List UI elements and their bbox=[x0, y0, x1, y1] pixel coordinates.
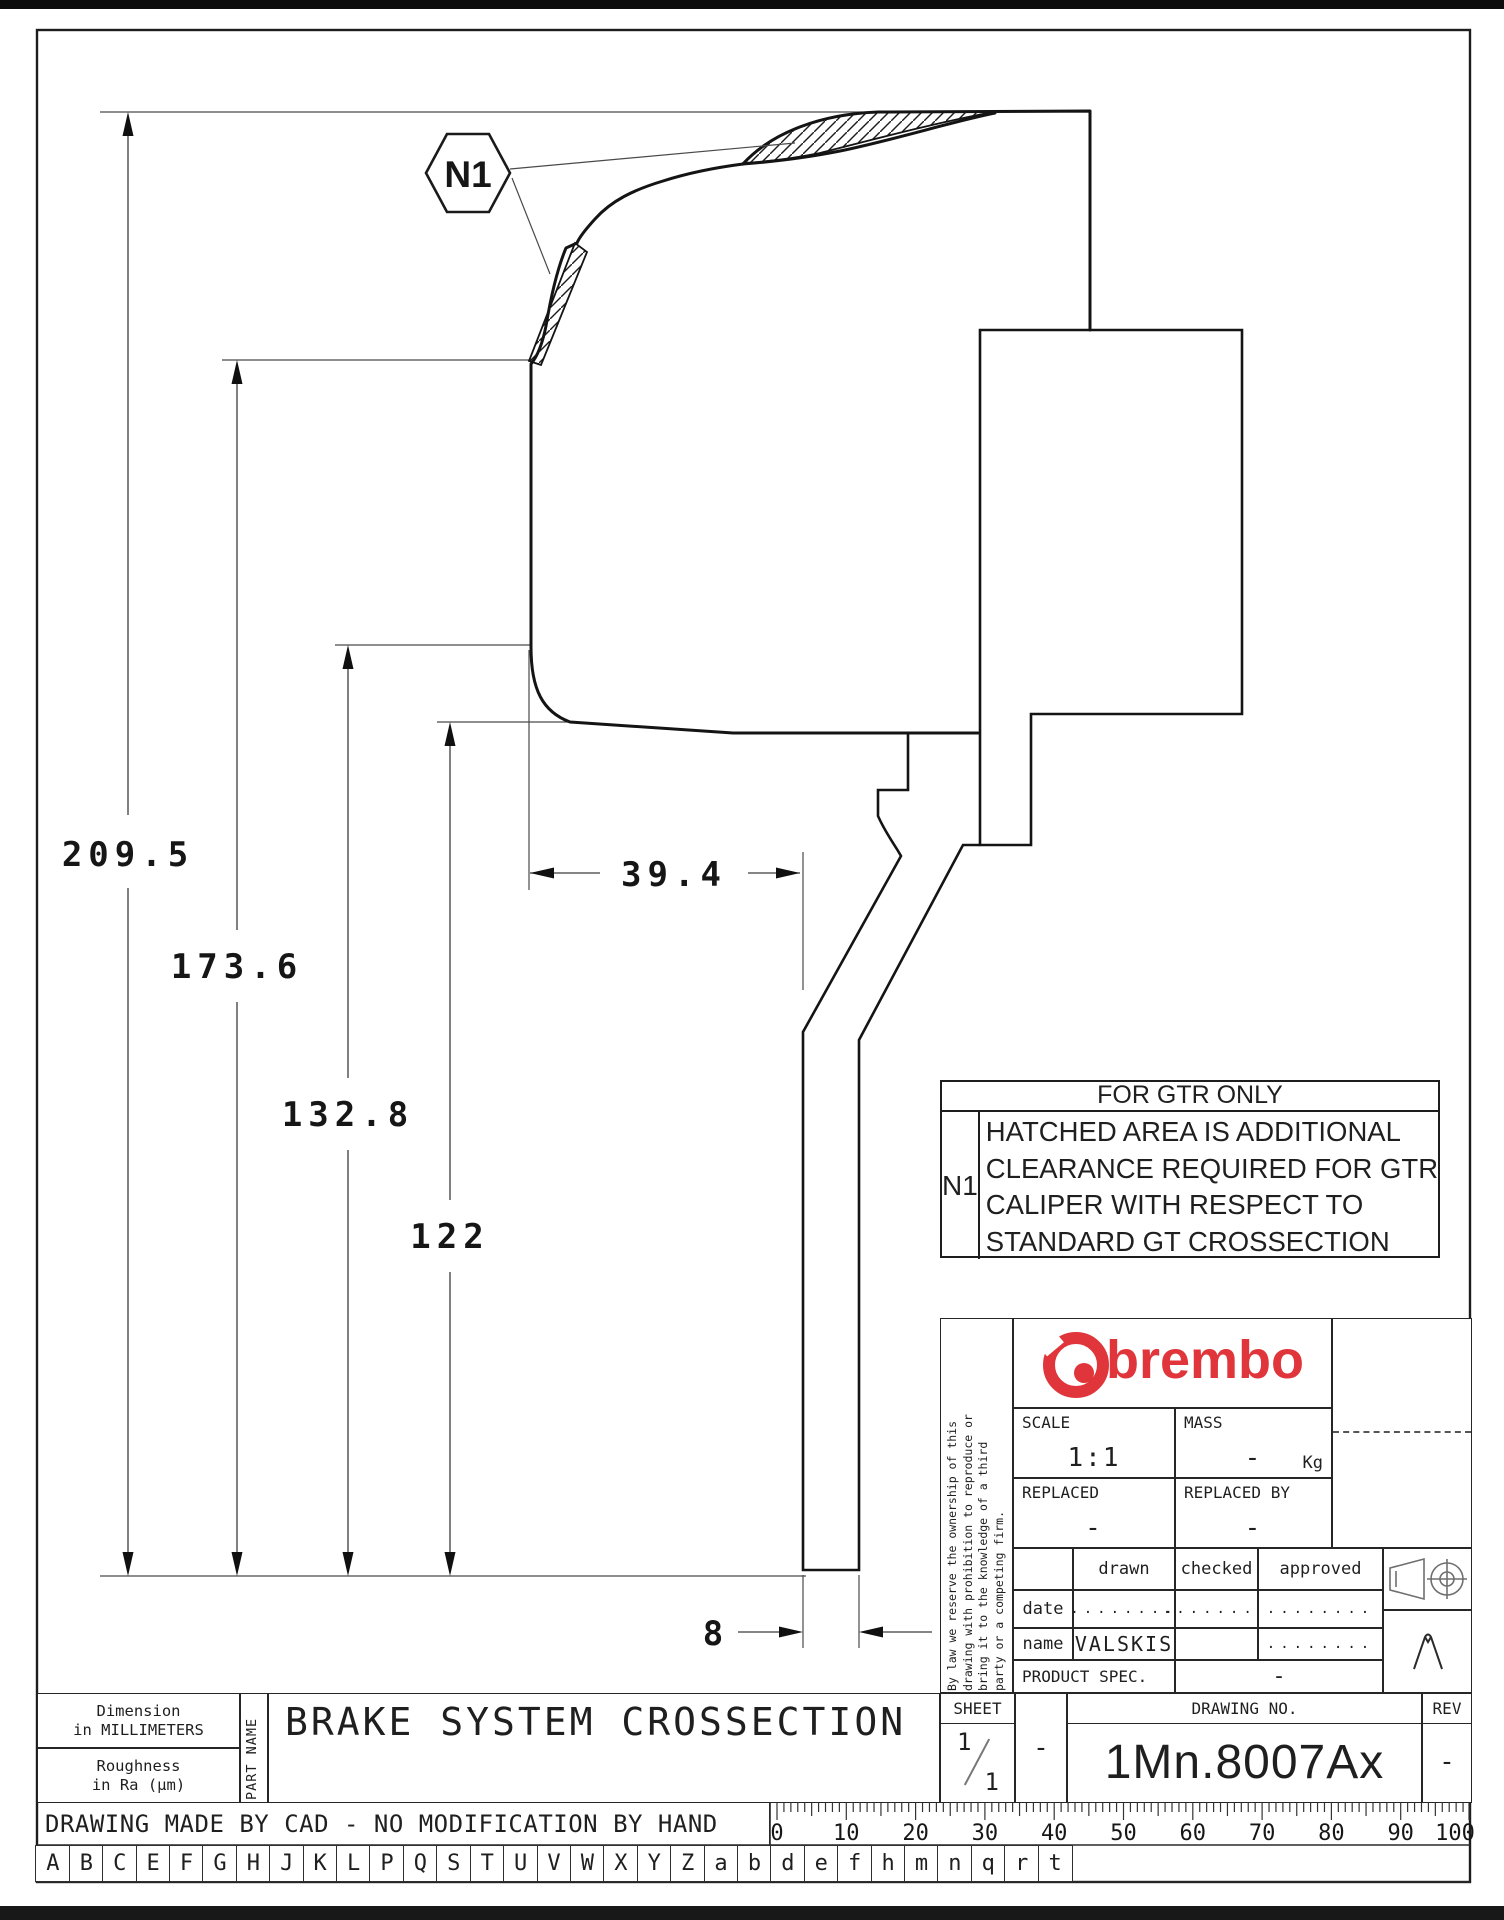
revision-letter: b bbox=[737, 1845, 772, 1882]
gtr-note-title: FOR GTR ONLY bbox=[942, 1082, 1438, 1112]
date-drawn-dots: ........ bbox=[1073, 1590, 1175, 1628]
revision-letter: F bbox=[169, 1845, 204, 1882]
gtr-note-line: STANDARD GT CROSSECTION bbox=[986, 1224, 1438, 1261]
roughness-note-line: Roughness bbox=[97, 1757, 181, 1776]
units-note-line: in MILLIMETERS bbox=[73, 1721, 204, 1740]
ruler-number: 0 bbox=[770, 1821, 783, 1846]
centerline-continuation bbox=[1333, 1431, 1471, 1433]
revision-letter: H bbox=[236, 1845, 271, 1882]
ruler-number: 70 bbox=[1249, 1821, 1276, 1846]
caliper-block-outline bbox=[980, 330, 1242, 845]
revision-letter: P bbox=[369, 1845, 404, 1882]
revision-letter: L bbox=[336, 1845, 371, 1882]
n1-balloon-label: N1 bbox=[444, 154, 491, 195]
dim-body-width: 39.4 bbox=[621, 855, 727, 895]
ruler-number: 40 bbox=[1041, 1821, 1068, 1846]
product-spec-cell: PRODUCT SPEC. bbox=[1013, 1660, 1175, 1693]
sheet-num: 1 bbox=[957, 1728, 971, 1756]
scale-cell: SCALE 1:1 bbox=[1013, 1408, 1175, 1478]
name-checked-blank bbox=[1175, 1628, 1258, 1660]
revision-letter: q bbox=[971, 1845, 1006, 1882]
cad-drawing-page: N1 209.5 173.6 132.8 122 39.4 8 01020304… bbox=[0, 0, 1504, 1920]
part-name-value: BRAKE SYSTEM CROSSECTION bbox=[269, 1694, 939, 1744]
sheet-den: 1 bbox=[985, 1768, 999, 1796]
scale-ruler: 0102030405060708090100 bbox=[770, 1803, 1475, 1846]
revision-letter: h bbox=[871, 1845, 906, 1882]
part-name-cell: BRAKE SYSTEM CROSSECTION bbox=[268, 1693, 940, 1803]
ruler-number: 100 bbox=[1435, 1821, 1475, 1846]
drawing-no-value: 1Mn.8007Ax bbox=[1068, 1724, 1421, 1800]
ruler-number: 10 bbox=[833, 1821, 860, 1846]
revision-letter: t bbox=[1038, 1845, 1073, 1882]
revision-letter: n bbox=[937, 1845, 972, 1882]
ownership-disclaimer: By law we reserve the ownership of this … bbox=[940, 1318, 1013, 1693]
revision-letter: d bbox=[770, 1845, 805, 1882]
product-spec-value: - bbox=[1175, 1660, 1383, 1693]
revision-letter: J bbox=[269, 1845, 304, 1882]
ruler-number: 30 bbox=[972, 1821, 999, 1846]
revision-letter: W bbox=[570, 1845, 605, 1882]
sheet-value: 1 1 bbox=[955, 1730, 1001, 1794]
date-approved-dots: ........ bbox=[1258, 1590, 1383, 1628]
replaced-by-value: - bbox=[1176, 1513, 1331, 1543]
approved-header: approved bbox=[1258, 1548, 1383, 1590]
dim-body-height: 132.8 bbox=[282, 1095, 414, 1135]
revision-letter: B bbox=[69, 1845, 104, 1882]
disclaimer-line: By law we reserve the ownership of this bbox=[945, 1319, 961, 1691]
sheet-label: SHEET bbox=[941, 1694, 1014, 1724]
revision-letter: f bbox=[837, 1845, 872, 1882]
revision-letter: G bbox=[202, 1845, 237, 1882]
revision-letter: m bbox=[904, 1845, 939, 1882]
revision-letter: Y bbox=[637, 1845, 672, 1882]
gtr-note-line: CALIPER WITH RESPECT TO bbox=[986, 1187, 1438, 1224]
name-drawn-value: VALSKIS bbox=[1073, 1628, 1175, 1660]
dim-disc-thickness: 8 bbox=[703, 1614, 729, 1654]
replaced-cell: REPLACED - bbox=[1013, 1478, 1175, 1548]
date-checked-dots: ........ bbox=[1175, 1590, 1258, 1628]
revision-letter: A bbox=[35, 1845, 70, 1882]
revision-letter: Z bbox=[670, 1845, 705, 1882]
title-block-spacer bbox=[1332, 1318, 1472, 1548]
revision-letter: K bbox=[303, 1845, 338, 1882]
disclaimer-line: drawing with prohibition to reproduce or bbox=[961, 1319, 977, 1691]
revision-letter: V bbox=[537, 1845, 572, 1882]
dimension-lines bbox=[128, 118, 932, 1632]
sheet-dash-cell: - bbox=[1015, 1693, 1067, 1803]
revision-letter: E bbox=[136, 1845, 171, 1882]
gtr-note-ref: N1 bbox=[942, 1112, 980, 1259]
replaced-label: REPLACED bbox=[1014, 1479, 1174, 1502]
revision-letter: e bbox=[804, 1845, 839, 1882]
disclaimer-line: party or a competing firm. bbox=[992, 1319, 1008, 1691]
gtr-note-box: FOR GTR ONLY N1 HATCHED AREA IS ADDITION… bbox=[940, 1080, 1440, 1258]
gtr-note-text: HATCHED AREA IS ADDITIONAL CLEARANCE REQ… bbox=[980, 1112, 1438, 1259]
revision-letter: C bbox=[102, 1845, 137, 1882]
roughness-note-line: in Ra (µm) bbox=[92, 1776, 185, 1795]
replaced-by-cell: REPLACED BY - bbox=[1175, 1478, 1332, 1548]
revision-letter: X bbox=[603, 1845, 638, 1882]
brand-cell: brembo bbox=[1013, 1318, 1332, 1408]
dim-hat-height: 173.6 bbox=[171, 947, 303, 987]
brand-wordmark: brembo bbox=[1106, 1333, 1304, 1387]
ruler-number: 90 bbox=[1387, 1821, 1414, 1846]
drawing-no-cell: DRAWING NO. 1Mn.8007Ax bbox=[1067, 1693, 1422, 1803]
revision-letter: Q bbox=[403, 1845, 438, 1882]
gtr-note-line: CLEARANCE REQUIRED FOR GTR bbox=[986, 1151, 1438, 1188]
ruler-number: 60 bbox=[1180, 1821, 1207, 1846]
cad-note-row: DRAWING MADE BY CAD - NO MODIFICATION BY… bbox=[37, 1803, 770, 1845]
hatch-area-upper bbox=[743, 112, 993, 163]
gtr-profile-outline bbox=[531, 113, 995, 733]
rev-label: REV bbox=[1423, 1694, 1471, 1724]
product-spec-label: PRODUCT SPEC. bbox=[1014, 1661, 1174, 1686]
revision-letter: r bbox=[1004, 1845, 1039, 1882]
revision-letter: S bbox=[436, 1845, 471, 1882]
title-block: By law we reserve the ownership of this … bbox=[940, 1318, 1472, 1803]
checked-header: checked bbox=[1175, 1548, 1258, 1590]
dim-inner-height: 122 bbox=[410, 1217, 489, 1257]
revision-letters-row: ABCEFGHJKLPQSTUVWXYZabdefhmnqrt bbox=[37, 1845, 1073, 1882]
ruler-number: 20 bbox=[902, 1821, 929, 1846]
units-note-cell: Dimension in MILLIMETERS bbox=[37, 1693, 240, 1748]
datum-symbol-cell bbox=[1383, 1610, 1472, 1693]
part-name-strip: Dimension in MILLIMETERS Roughness in Ra… bbox=[37, 1693, 940, 1803]
mass-cell: MASS - Kg bbox=[1175, 1408, 1332, 1478]
projection-symbol-icon bbox=[1384, 1549, 1471, 1609]
revision-letter: a bbox=[704, 1845, 739, 1882]
name-approved-dots: ........ bbox=[1258, 1628, 1383, 1660]
name-label: name bbox=[1013, 1628, 1073, 1660]
part-name-label: PART NAME bbox=[244, 1694, 260, 1800]
rev-cell: REV - bbox=[1422, 1693, 1472, 1803]
disclaimer-line: bring it to the knowledge of a third bbox=[976, 1319, 992, 1691]
gtr-note-line: HATCHED AREA IS ADDITIONAL bbox=[986, 1114, 1438, 1151]
sig-header-blank bbox=[1013, 1548, 1073, 1590]
projection-symbol-cell bbox=[1383, 1548, 1472, 1610]
hatch-area-lower bbox=[529, 243, 587, 365]
ruler-number: 50 bbox=[1110, 1821, 1137, 1846]
roughness-note-cell: Roughness in Ra (µm) bbox=[37, 1748, 240, 1803]
revision-letter: T bbox=[470, 1845, 505, 1882]
scale-label: SCALE bbox=[1014, 1409, 1174, 1432]
drawn-header: drawn bbox=[1073, 1548, 1175, 1590]
replaced-value: - bbox=[1014, 1513, 1174, 1543]
dimension-values: 209.5 173.6 132.8 122 39.4 8 bbox=[62, 835, 729, 1654]
ruler-number: 80 bbox=[1318, 1821, 1345, 1846]
date-label: date bbox=[1013, 1590, 1073, 1628]
scale-value: 1:1 bbox=[1014, 1443, 1174, 1473]
sheet-cell: SHEET 1 1 bbox=[940, 1693, 1015, 1803]
dim-overall-height: 209.5 bbox=[62, 835, 194, 875]
part-name-label-cell: PART NAME bbox=[240, 1693, 268, 1803]
datum-a-icon bbox=[1384, 1611, 1471, 1691]
mass-label: MASS bbox=[1176, 1409, 1331, 1432]
replaced-by-label: REPLACED BY bbox=[1176, 1479, 1331, 1502]
drawing-no-label: DRAWING NO. bbox=[1068, 1694, 1421, 1724]
units-note-line: Dimension bbox=[97, 1702, 181, 1721]
revision-letter: U bbox=[503, 1845, 538, 1882]
mass-unit: Kg bbox=[1303, 1453, 1323, 1473]
rev-value: - bbox=[1423, 1724, 1471, 1800]
